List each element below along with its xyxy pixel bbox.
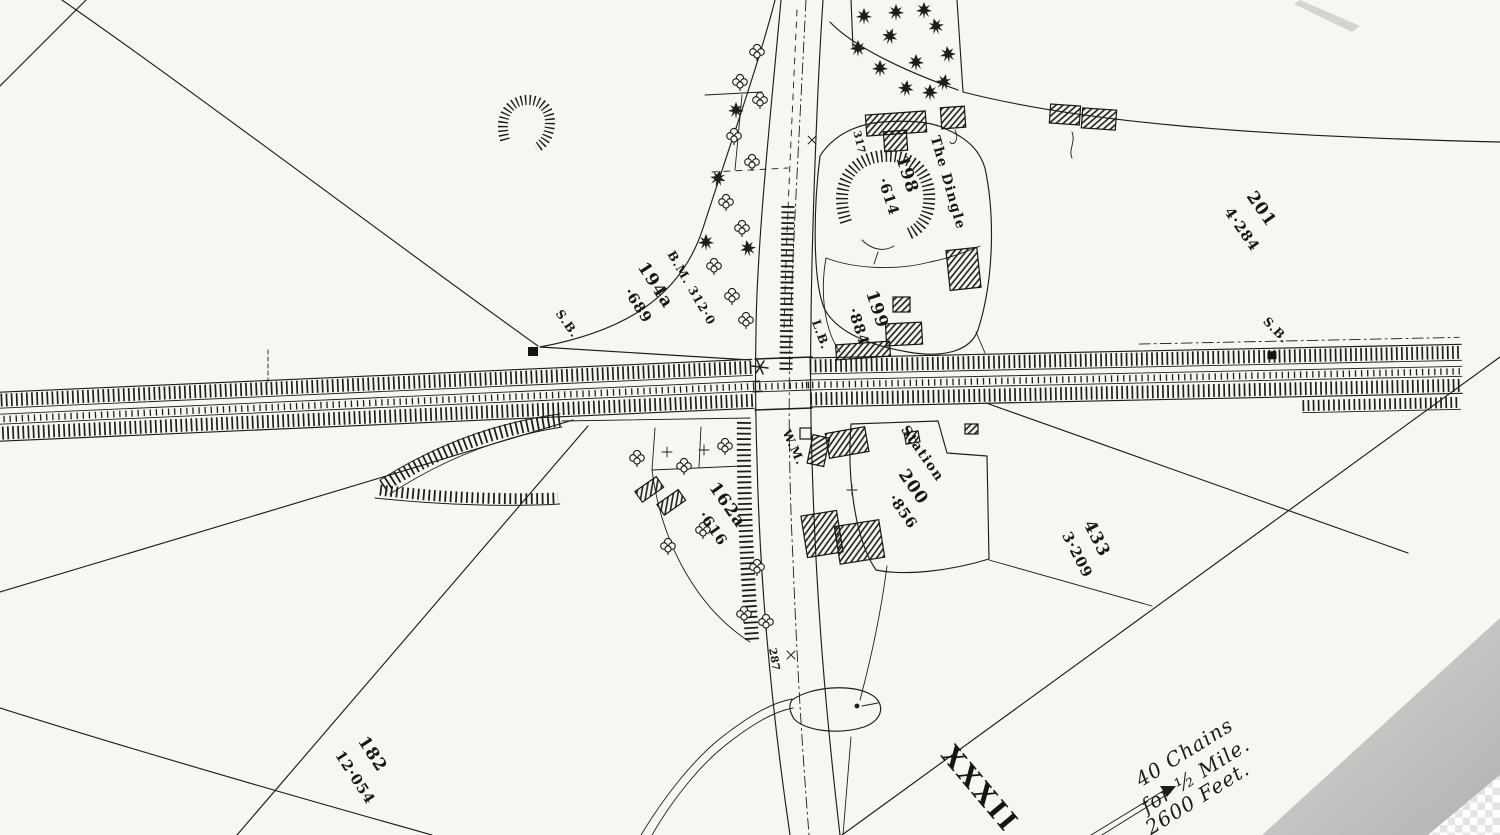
deciduous-tree-icon bbox=[725, 288, 740, 305]
survey-marks bbox=[268, 136, 857, 659]
boundary-cross-mark bbox=[787, 651, 795, 659]
deciduous-tree-icon bbox=[739, 312, 754, 329]
paper-edge-shadow-top bbox=[1294, 0, 1360, 32]
road bbox=[375, 0, 840, 835]
deciduous-tree-icon bbox=[718, 438, 733, 455]
conifer-tree-icon bbox=[872, 60, 888, 77]
station-building bbox=[965, 424, 978, 434]
deciduous-tree-icon bbox=[677, 458, 692, 475]
old-pit-hachure bbox=[503, 100, 550, 148]
conifer-tree-icon bbox=[916, 2, 932, 19]
building-roadside bbox=[1081, 108, 1116, 130]
deciduous-tree-icon bbox=[753, 92, 768, 109]
railway-east-section bbox=[805, 337, 1462, 423]
label-parcel-198: 198 bbox=[891, 153, 922, 196]
building bbox=[657, 490, 686, 516]
label-317: 317 bbox=[850, 130, 867, 155]
building-outline bbox=[800, 428, 811, 439]
building bbox=[946, 247, 981, 290]
building bbox=[635, 477, 664, 503]
building-outbuilding bbox=[940, 106, 965, 129]
label-the-dingle: The Dingle bbox=[927, 134, 969, 232]
building-roadside bbox=[1049, 104, 1080, 125]
label-287: 287 bbox=[766, 647, 782, 672]
building bbox=[893, 297, 910, 312]
deciduous-tree-icon bbox=[737, 606, 752, 623]
label-signal-box-west: S.B. bbox=[553, 307, 582, 340]
signal-box-west bbox=[528, 347, 538, 356]
crossing-arrow-mark bbox=[752, 360, 768, 374]
boundary-cross-mark bbox=[808, 136, 816, 144]
railway-west-section bbox=[0, 359, 763, 443]
conifer-tree-icon bbox=[939, 45, 957, 64]
signal-box-east bbox=[1267, 351, 1276, 359]
building-dingle-house-wing bbox=[883, 130, 907, 152]
label-sheet-number: XXXII bbox=[934, 740, 1024, 835]
ordnance-survey-map: The Dingle 198 ·614 317 B.M. 312·0 194a … bbox=[0, 0, 1500, 835]
deciduous-tree-icon bbox=[745, 154, 760, 171]
deciduous-tree-icon bbox=[661, 538, 676, 555]
deciduous-tree-icon bbox=[759, 614, 774, 631]
building bbox=[885, 322, 922, 346]
station-building bbox=[834, 520, 884, 565]
deciduous-tree-icon bbox=[707, 258, 722, 275]
map-labels: The Dingle 198 ·614 317 B.M. 312·0 194a … bbox=[331, 130, 1291, 835]
conifer-tree-icon bbox=[897, 79, 916, 99]
conifer-tree-icon bbox=[926, 16, 946, 37]
conifer-tree-icon bbox=[739, 239, 758, 259]
fence-mark bbox=[699, 445, 709, 455]
fence-mark bbox=[662, 447, 672, 457]
deciduous-tree-icon bbox=[733, 74, 748, 91]
label-weighing-machine: W.M. bbox=[779, 427, 807, 468]
paper-edge-shadow bbox=[1262, 618, 1500, 835]
conifer-tree-icon bbox=[922, 84, 938, 101]
gate-mark bbox=[847, 485, 857, 495]
conifer-tree-icon bbox=[908, 54, 924, 71]
deciduous-tree-icon bbox=[727, 128, 742, 145]
label-area-614: ·614 bbox=[874, 176, 902, 218]
deciduous-tree-icon bbox=[719, 194, 734, 211]
map-canvas: The Dingle 198 ·614 317 B.M. 312·0 194a … bbox=[0, 0, 1500, 835]
deciduous-tree-icon bbox=[630, 450, 645, 467]
field-boundaries bbox=[0, 0, 1500, 835]
station-building bbox=[825, 427, 869, 459]
embankment-hachure bbox=[383, 420, 560, 486]
conifer-tree-icon bbox=[888, 4, 904, 21]
conifer-tree-icon bbox=[879, 26, 900, 47]
buildings bbox=[635, 104, 1117, 564]
conifer-tree-icon bbox=[728, 102, 744, 119]
deciduous-tree-icon bbox=[735, 220, 750, 237]
boundary-dashdot-line bbox=[789, 0, 809, 835]
conifer-tree-icon bbox=[856, 8, 872, 25]
label-letter-box: L.B. bbox=[809, 318, 833, 352]
